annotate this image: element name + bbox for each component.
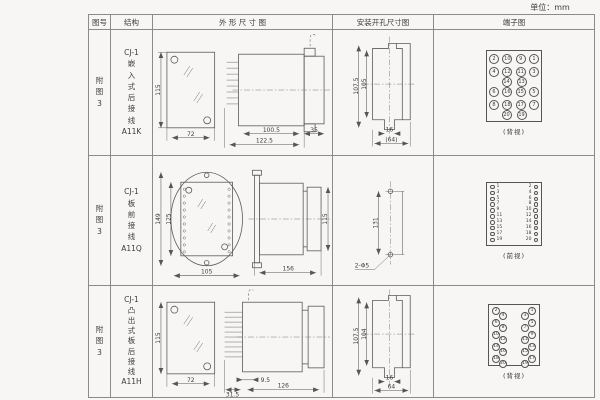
terminal-row: 13 14 [490, 220, 538, 225]
structure-2: CJ-1板前接线A11Q [111, 156, 153, 286]
terminal-pin: 16 [499, 348, 507, 356]
structure-char: 入 [128, 72, 136, 80]
terminal-diagram-front: 1 2 3 4 5 6 [486, 182, 542, 246]
dim-label: 105 [361, 78, 368, 90]
outline-svg-a11h: 115 72 9.5 31.5 126 [153, 286, 332, 398]
terminal-number: 16 [526, 226, 532, 231]
terminal-cell-2: 1 2 3 4 5 6 [434, 156, 594, 286]
terminal-pin-circle [534, 197, 539, 202]
terminal-row: 3 4 [490, 191, 538, 196]
structure-char: CJ-1 [124, 49, 139, 57]
terminal-pin: 9 [516, 54, 526, 64]
structure-char: 板 [128, 200, 136, 208]
spec-table: 图号 结构 外 形 尺 寸 图 安装开孔尺寸图 端子图 附图3 CJ-1嵌入式后… [88, 14, 595, 398]
header-terminal: 端子图 [434, 15, 594, 30]
terminal-pin-circle [490, 185, 495, 190]
structure-char: 式 [128, 83, 136, 91]
header-structure: 结构 [111, 15, 153, 30]
hole-spec-label: 2-Φ5 [355, 262, 370, 269]
terminal-number: 13 [497, 220, 503, 225]
terminal-pin: 4 [499, 312, 507, 320]
fig-no-char: 附 [96, 77, 104, 85]
terminal-cell-3: 26101418 48121620 37111519 1591317 (背视) [434, 286, 594, 397]
terminal-number: 20 [526, 238, 532, 243]
terminal-diagram-rear: 21091 412113 1413 616155 818177 2019 [486, 50, 542, 122]
header-mounting: 安装开孔尺寸图 [333, 15, 434, 30]
outline-drawing-2: 149 125 105 156 115 [153, 156, 333, 286]
terminal-pin: 11 [516, 67, 526, 77]
terminal-number: 11 [497, 214, 503, 219]
terminal-pin-circle [534, 202, 539, 207]
dim-label: 156 [283, 265, 295, 272]
outline-svg-a11q: 149 125 105 156 115 [153, 157, 332, 285]
fig-no-char: 图 [96, 88, 104, 96]
terminal-pin: 13 [517, 77, 527, 87]
terminal-pin: 4 [489, 67, 499, 77]
fig-no-char: 3 [97, 349, 102, 357]
structure-char: 式 [128, 327, 136, 335]
terminal-pin: 14 [502, 77, 512, 87]
terminal-pin: 2 [489, 54, 499, 64]
header-fig-no: 图号 [89, 15, 111, 30]
dim-label: 115 [155, 84, 162, 96]
terminal-cell-1: 21091 412113 1413 616155 818177 2019 (背视… [434, 30, 594, 156]
terminal-row: 1 2 [490, 185, 538, 190]
terminal-pin: 1 [528, 307, 536, 315]
terminal-pin: 17 [528, 355, 536, 363]
structure-char: A11H [121, 378, 141, 386]
terminal-pin: 7 [529, 100, 539, 110]
dim-label: 9.5 [261, 376, 271, 383]
terminal-pin-circle [534, 185, 539, 190]
terminal-pin-circle [534, 220, 539, 225]
structure-1: CJ-1嵌入式后接线A11K [111, 30, 153, 156]
terminal-pin-circle [534, 191, 539, 196]
structure-char: 线 [128, 117, 136, 125]
structure-char: 前 [128, 211, 136, 219]
terminal-pin: 15 [516, 87, 526, 97]
fig-no-char: 图 [96, 216, 104, 224]
dim-label: 125 [165, 213, 172, 225]
terminal-group-right: 37111519 1591317 [521, 307, 536, 363]
terminal-pin: 5 [529, 87, 539, 97]
dim-label: 16 [386, 374, 394, 381]
fig-no-2: 附图3 [89, 156, 111, 286]
dim-label: 100.5 [263, 126, 280, 133]
terminal-caption: (背视) [503, 370, 525, 380]
structure-char: 线 [128, 368, 136, 376]
dim-label: 35 [310, 126, 318, 133]
terminal-pin: 12 [502, 67, 512, 77]
mounting-drawing-3: 107.5 104 16 64 [333, 286, 434, 397]
terminal-pin: 1 [529, 54, 539, 64]
terminal-number: 12 [526, 214, 532, 219]
terminal-pin: 13 [528, 343, 536, 351]
terminal-pin-circle [534, 238, 539, 243]
fig-no-char: 附 [96, 205, 104, 213]
terminal-pin-circle [490, 214, 495, 219]
terminal-pin: 20 [502, 110, 512, 120]
terminal-number: 19 [497, 238, 503, 243]
structure-char: 嵌 [128, 60, 136, 68]
mounting-drawing-1: 107.5 105 16 (64) [333, 30, 434, 156]
mounting-svg-a11k: 107.5 105 16 (64) [333, 30, 433, 156]
structure-char: 接 [128, 358, 136, 366]
terminal-number: 2 [529, 185, 532, 190]
dim-label: 115 [155, 332, 162, 344]
dim-label: 64 [388, 383, 396, 390]
structure-char: 接 [128, 222, 136, 230]
terminal-pin-circle [490, 202, 495, 207]
terminal-pin: 20 [499, 360, 507, 368]
terminal-pin: 18 [502, 100, 512, 110]
terminal-row: 19 20 [490, 238, 538, 243]
structure-char: A11K [122, 128, 142, 136]
terminal-row: 15 16 [490, 226, 538, 231]
terminal-pin: 16 [502, 87, 512, 97]
fig-no-3: 附图3 [89, 286, 111, 397]
structure-char: 板 [128, 337, 136, 345]
dim-label: 104 [361, 328, 368, 340]
terminal-pin-circle [534, 232, 539, 237]
terminal-caption: (前视) [503, 250, 525, 260]
terminal-pin: 10 [502, 54, 512, 64]
mounting-drawing-2: 131 2-Φ5 [333, 156, 434, 286]
terminal-number: 1 [497, 185, 500, 190]
terminal-pin: 19 [517, 110, 527, 120]
structure-char: 出 [128, 317, 136, 325]
mounting-svg-a11h: 107.5 104 16 64 [333, 286, 433, 398]
outline-drawing-1: 115 72 100.5 35 122.5 [153, 30, 333, 156]
terminal-number: 15 [497, 226, 503, 231]
terminal-pin: 17 [516, 100, 526, 110]
structure-char: 后 [128, 94, 136, 102]
terminal-number: 4 [529, 191, 532, 196]
dim-label: 16 [386, 126, 394, 133]
structure-char: 线 [128, 233, 136, 241]
terminal-group-left: 26101418 48121620 [492, 307, 507, 363]
terminal-pin-circle [490, 208, 495, 213]
terminal-pin-circle [490, 226, 495, 231]
structure-char: 后 [128, 348, 136, 356]
dim-label: 72 [187, 130, 195, 137]
terminal-pin: 3 [529, 67, 539, 77]
dim-label: 122.5 [256, 137, 273, 144]
terminal-pin: 8 [489, 100, 499, 110]
terminal-pin-circle [490, 232, 495, 237]
terminal-number: 18 [526, 232, 532, 237]
terminal-pin-circle [534, 226, 539, 231]
terminal-number: 17 [497, 232, 503, 237]
dim-label: 149 [155, 213, 162, 225]
terminal-row: 17 18 [490, 232, 538, 237]
header-outline: 外 形 尺 寸 图 [153, 15, 333, 30]
terminal-pin: 5 [528, 319, 536, 327]
dim-label: (64) [385, 136, 397, 143]
terminal-pin-circle [490, 191, 495, 196]
terminal-pin: 9 [528, 331, 536, 339]
terminal-number: 14 [526, 220, 532, 225]
dim-label: 105 [201, 268, 213, 275]
dim-label: 107.5 [353, 77, 360, 94]
terminal-pin-circle [533, 208, 538, 213]
structure-char: A11Q [121, 245, 142, 253]
terminal-caption: (背视) [503, 126, 525, 136]
terminal-pin: 12 [499, 336, 507, 344]
terminal-row: 11 12 [490, 214, 538, 219]
terminal-pin-circle [490, 238, 495, 243]
terminal-pin-circle [534, 214, 539, 219]
dim-label: 131 [373, 217, 380, 229]
outline-drawing-3: 115 72 9.5 31.5 126 [153, 286, 333, 397]
dim-label: 72 [187, 376, 195, 383]
dim-label: 31.5 [226, 391, 239, 397]
terminal-diagram-rear-zigzag: 26101418 48121620 37111519 1591317 [488, 304, 540, 366]
structure-3: CJ-1凸出式板后接线A11H [111, 286, 153, 397]
outline-svg-a11k: 115 72 100.5 35 122.5 [153, 30, 332, 156]
structure-char: 凸 [128, 307, 136, 315]
structure-char: 接 [128, 105, 136, 113]
terminal-pin: 6 [489, 87, 499, 97]
fig-no-char: 图 [96, 337, 104, 345]
fig-no-char: 附 [96, 326, 104, 334]
fig-no-char: 3 [97, 228, 102, 236]
terminal-pin: 8 [499, 324, 507, 332]
dim-label: 115 [322, 213, 329, 225]
structure-char: CJ-1 [124, 188, 139, 196]
terminal-number: 3 [497, 191, 500, 196]
structure-char: CJ-1 [124, 296, 139, 304]
terminal-pin-circle [490, 220, 495, 225]
terminal-pin-circle [490, 197, 495, 202]
mounting-svg-a11q: 131 2-Φ5 [333, 157, 433, 285]
dim-label: 107.5 [353, 327, 360, 344]
dim-label: 126 [278, 382, 290, 389]
fig-no-1: 附图3 [89, 30, 111, 156]
fig-no-char: 3 [97, 100, 102, 108]
